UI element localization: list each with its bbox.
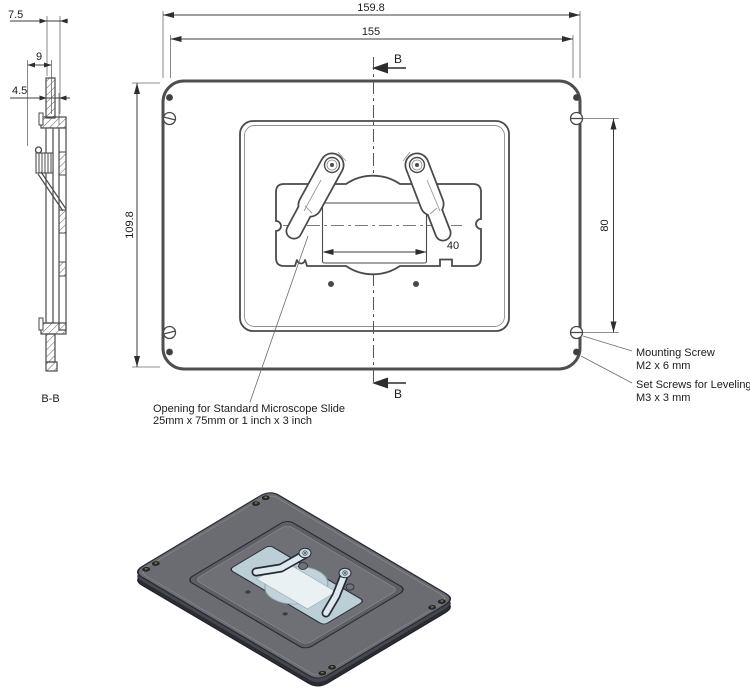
opening-note-line2: 25mm x 75mm or 1 inch x 3 inch — [153, 415, 312, 427]
opening-note-line1: Opening for Standard Microscope Slide — [153, 403, 345, 415]
iso-view — [133, 490, 455, 689]
dowel-hole-left — [328, 281, 334, 287]
dim-155: 155 — [362, 26, 380, 38]
section-arrow-top: B — [372, 52, 406, 74]
top-view: 159.8 155 109.8 80 40 — [124, 2, 750, 427]
drawing-svg: 7.5 9 4.5 — [0, 0, 750, 690]
dim-40: 40 — [447, 240, 459, 252]
mounting-screw-note-line2: M2 x 6 mm — [636, 360, 690, 372]
dim-7-5: 7.5 — [8, 9, 23, 21]
dim-80: 80 — [599, 219, 611, 231]
section-label: B-B — [41, 393, 59, 405]
dowel-hole-right — [413, 281, 419, 287]
dim-4-5: 4.5 — [12, 85, 27, 97]
section-arrow-bottom-label: B — [394, 387, 402, 401]
technical-drawing-page: 7.5 9 4.5 — [0, 0, 750, 690]
dim-109-8: 109.8 — [124, 211, 136, 239]
dim-9: 9 — [36, 51, 42, 63]
section-profile — [36, 78, 67, 371]
set-screw-note-line1: Set Screws for Leveling — [636, 379, 750, 391]
set-screw-note-line2: M3 x 3 mm — [636, 392, 690, 404]
section-view-bb: 7.5 9 4.5 — [8, 9, 70, 405]
dim-159-8: 159.8 — [357, 2, 385, 14]
section-arrow-top-label: B — [394, 52, 402, 66]
section-arrow-bottom: B — [372, 378, 406, 402]
mounting-screw-note-line1: Mounting Screw — [636, 347, 715, 359]
